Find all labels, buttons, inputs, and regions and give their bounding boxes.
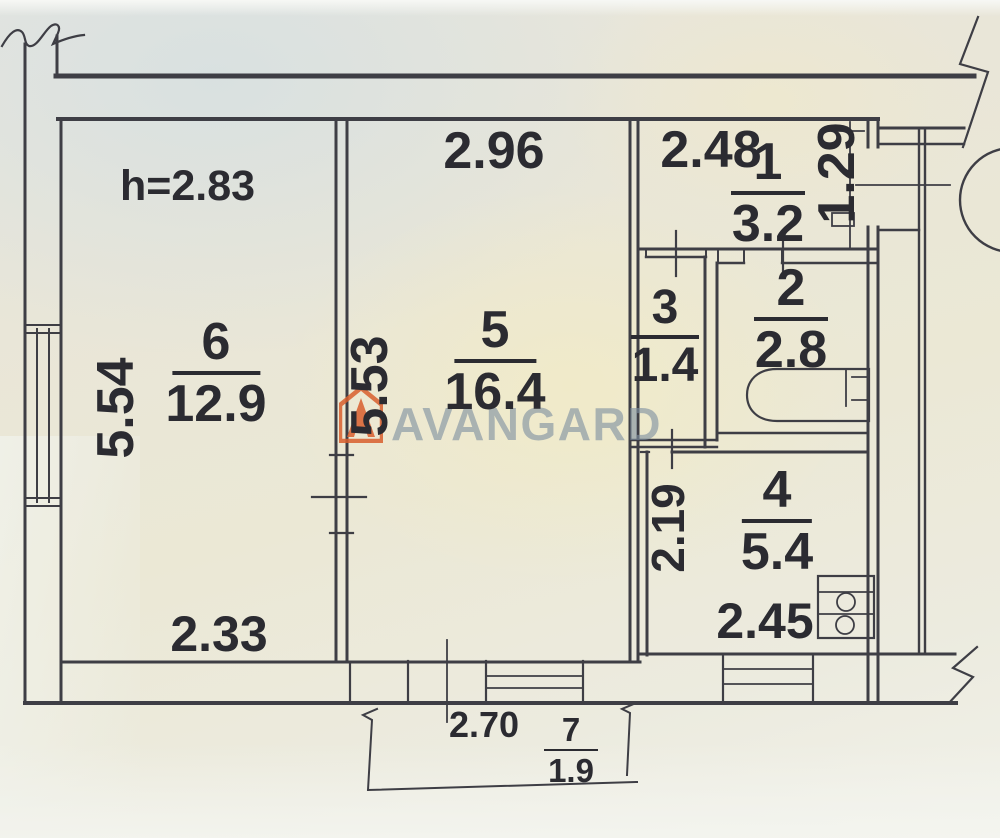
bottom-wall-rooms <box>61 661 640 703</box>
dim-room6-depth: 5.54 <box>86 357 146 458</box>
dim-room5-depth: 5.53 <box>340 335 400 436</box>
dim-room5-width: 2.96 <box>443 121 544 181</box>
room-4-number: 4 <box>742 464 812 523</box>
room-1-number: 1 <box>731 136 805 195</box>
room-5-number: 5 <box>454 304 536 363</box>
room-3-area: 1.4 <box>632 339 699 390</box>
dim-kitchen-width: 2.45 <box>716 592 813 650</box>
dim-room6-width: 2.33 <box>170 605 267 663</box>
room-7-area: 1.9 <box>548 751 594 787</box>
room-3-label: 3 1.4 <box>631 284 699 390</box>
room-4-area: 5.4 <box>741 523 813 578</box>
room-7-number: 7 <box>544 713 598 751</box>
room-1-area: 3.2 <box>732 195 804 250</box>
left-wall <box>25 36 61 703</box>
room-3-number: 3 <box>631 284 699 339</box>
room-5-area: 16.4 <box>444 363 545 418</box>
room-6-number: 6 <box>172 316 260 375</box>
room-1-label: 1 3.2 <box>731 136 805 250</box>
window-kitchen-icon <box>723 669 813 684</box>
room-2-label: 2 2.8 <box>754 262 828 376</box>
stove-icon <box>818 576 874 638</box>
dim-entry-depth: 1.29 <box>807 122 867 223</box>
window-room6-icon <box>25 325 61 506</box>
dim-kitchen-depth: 2.19 <box>641 483 695 573</box>
floor-plan-photo: AVANGARD h=2.83 2.96 2.48 1.29 5.54 5.53… <box>0 0 1000 838</box>
room-2-number: 2 <box>754 262 828 321</box>
room-6-area: 12.9 <box>165 375 266 430</box>
room-2-area: 2.8 <box>755 321 827 376</box>
room-6-label: 6 12.9 <box>165 316 266 430</box>
room-4-label: 4 5.4 <box>741 464 813 578</box>
room-7-balcony-label: 7 1.9 <box>544 713 598 787</box>
ceiling-height-label: h=2.83 <box>120 162 255 211</box>
dim-room5-window: 2.70 <box>449 704 519 746</box>
break-line-top-left <box>2 24 84 46</box>
stairwell-circle <box>960 148 1000 252</box>
room-5-label: 5 16.4 <box>444 304 545 418</box>
